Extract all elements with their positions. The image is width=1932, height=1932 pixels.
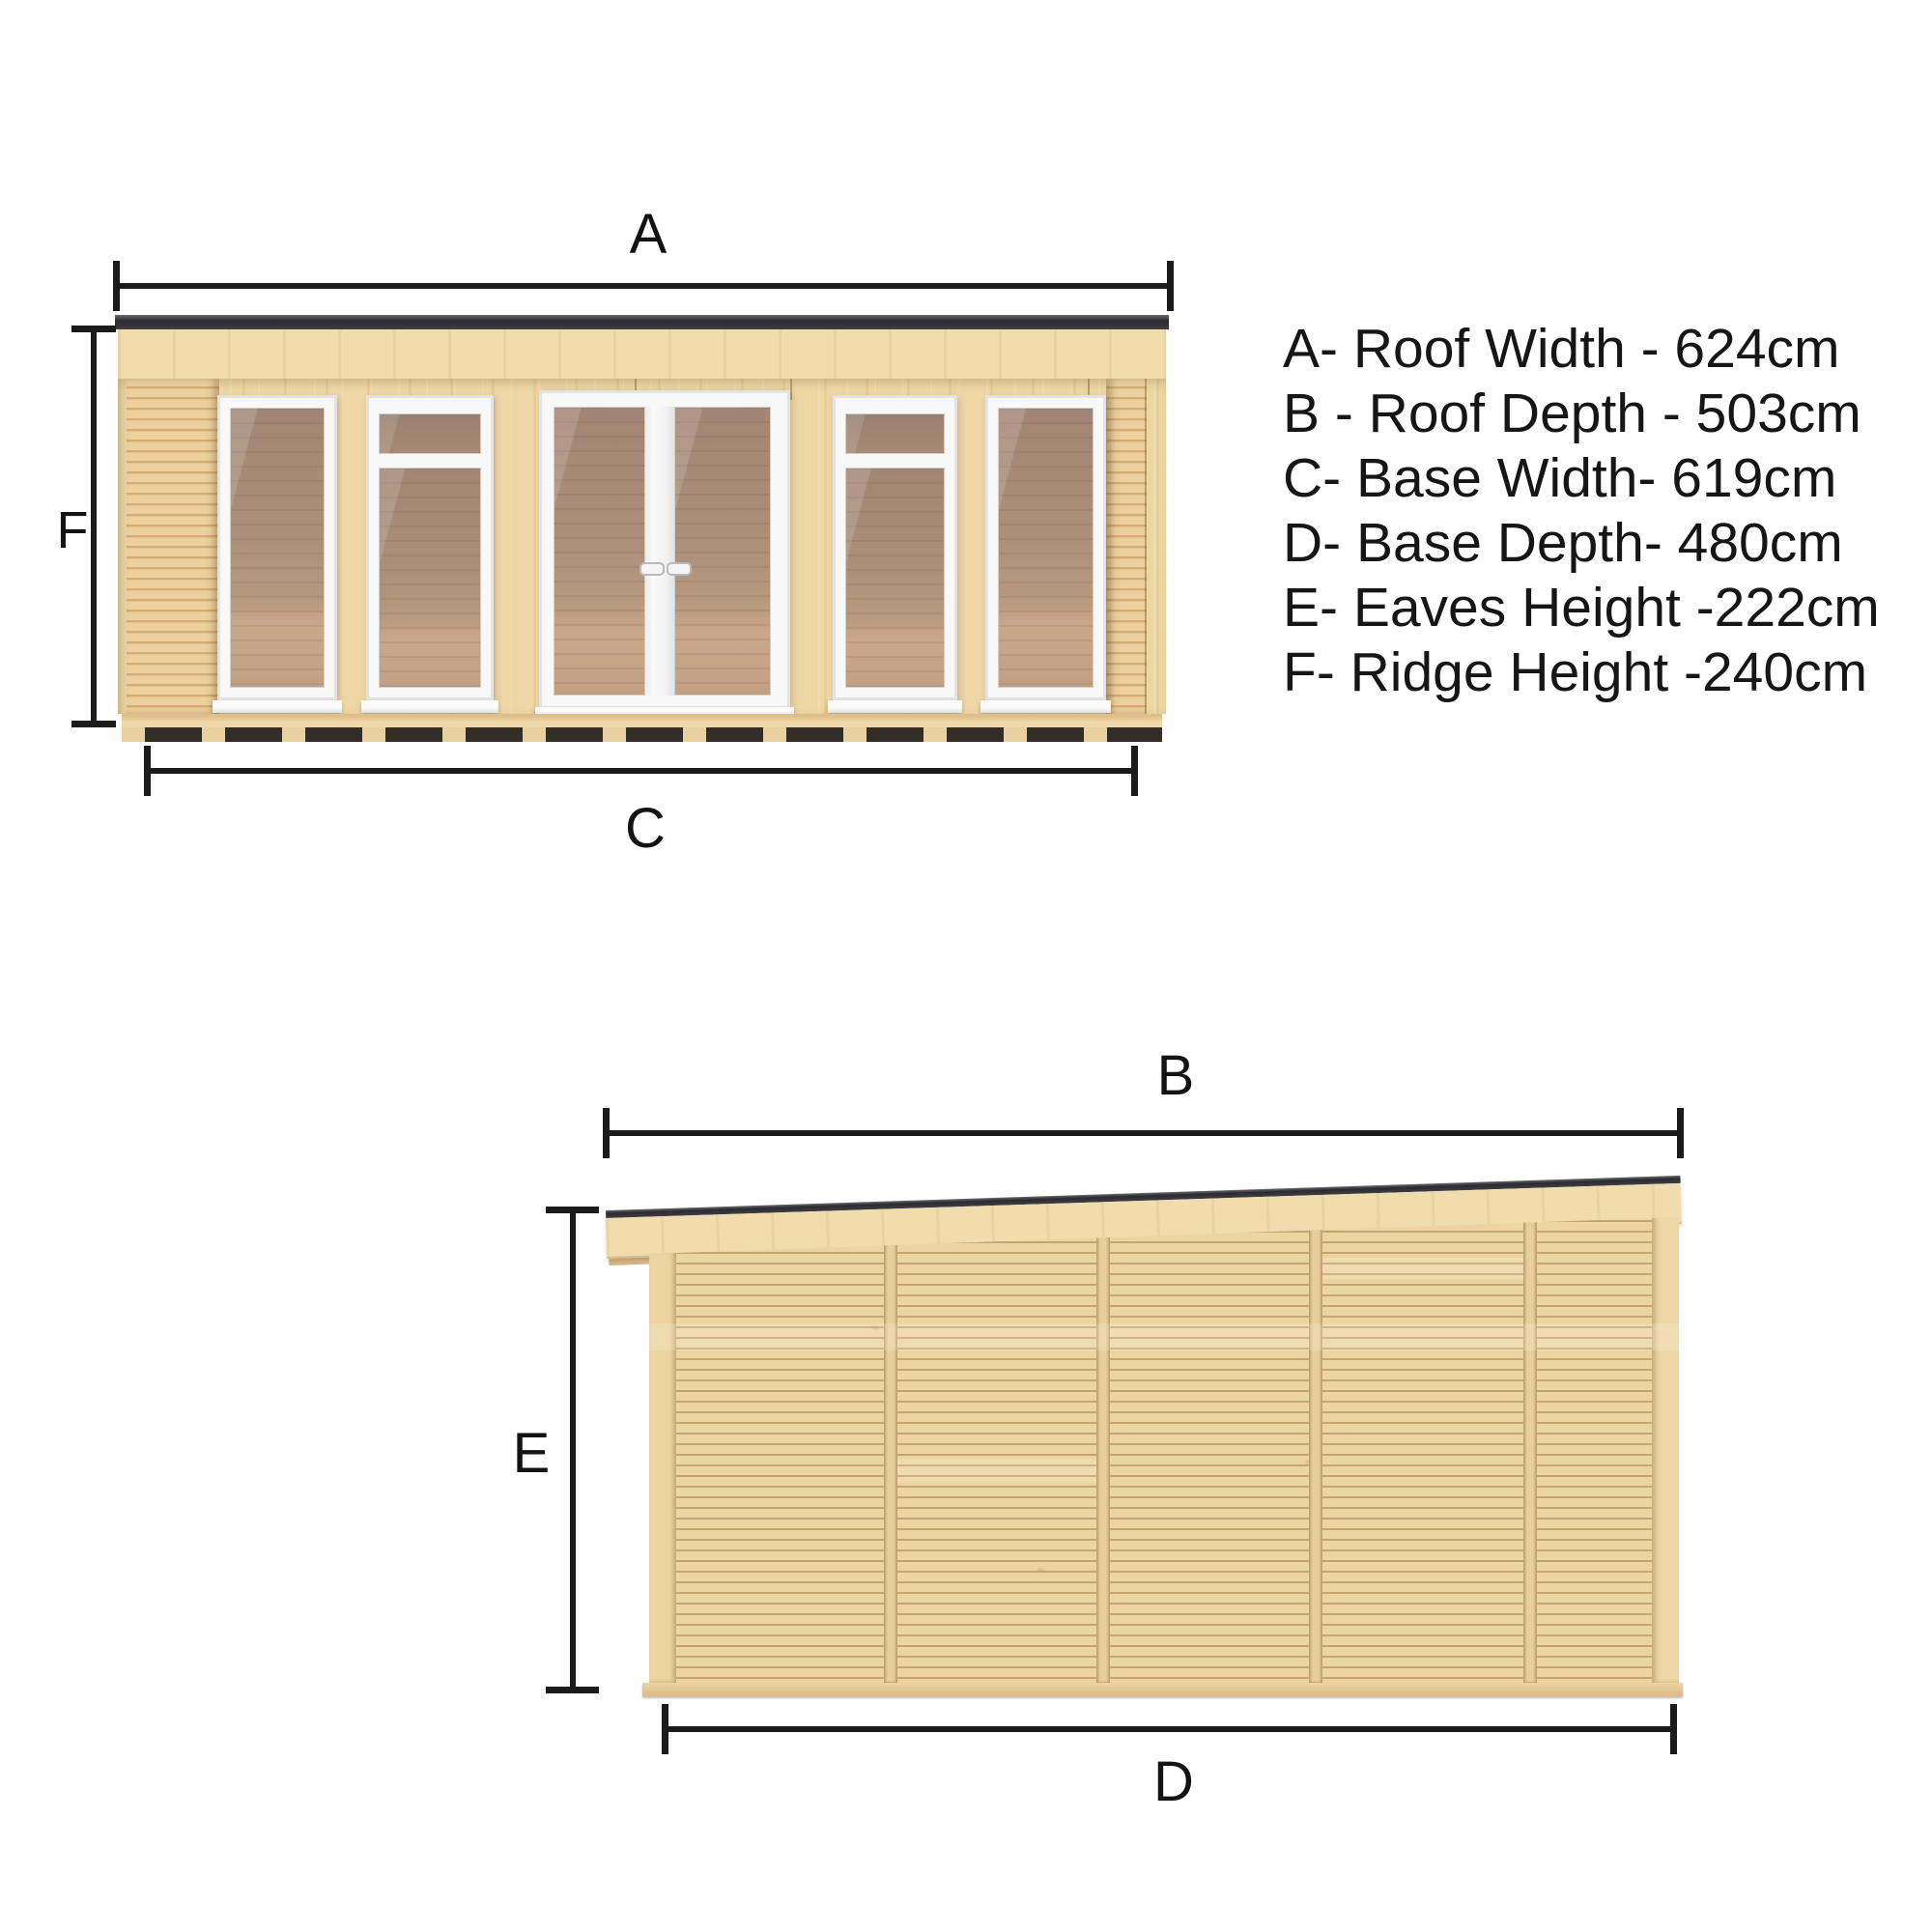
dim-line-base-depth [665, 1726, 1676, 1732]
left-corner-slat-wall [127, 379, 219, 714]
double-door [539, 390, 790, 709]
dim-tick [1677, 1108, 1684, 1158]
legend-line-eaves-height: E- Eaves Height -222cm [1283, 576, 1880, 640]
dim-tick [1167, 261, 1174, 311]
tall-window-right [985, 395, 1106, 700]
legend-line-ridge-height: F- Ridge Height -240cm [1283, 640, 1880, 705]
window-sill [828, 700, 962, 713]
legend-line-roof-width: A- Roof Width - 624cm [1283, 317, 1880, 382]
dim-line-roof-depth [606, 1130, 1683, 1136]
transom-window-left [366, 395, 494, 700]
board-highlight [649, 1323, 1679, 1350]
dim-label-roof-depth: B [1137, 1047, 1214, 1105]
transom-pane [845, 413, 945, 454]
dim-tick [71, 326, 116, 332]
panel-joint [884, 1169, 897, 1683]
side-base-rail [642, 1683, 1683, 1696]
board-highlight [897, 1459, 1096, 1482]
right-corner-trim [1652, 1169, 1679, 1683]
panel-joint [1096, 1169, 1110, 1683]
door-glass-left [554, 407, 645, 696]
transom-window-right [833, 395, 957, 700]
dimension-legend: A- Roof Width - 624cm B - Roof Depth - 5… [1283, 317, 1880, 705]
dim-label-base-width: C [607, 800, 684, 858]
legend-line-base-depth: D- Base Depth- 480cm [1283, 511, 1880, 576]
floor-edge [122, 714, 1162, 727]
window-glass [845, 468, 945, 688]
front-elevation-view [118, 315, 1166, 742]
right-corner-post-edge [1145, 379, 1147, 714]
side-elevation-view [599, 1169, 1690, 1710]
dim-tick [546, 1207, 599, 1213]
dim-tick [144, 746, 151, 796]
legend-line-roof-depth: B - Roof Depth - 503cm [1283, 382, 1880, 446]
window-sill [361, 700, 498, 713]
legend-line-base-width: C- Base Width- 619cm [1283, 446, 1880, 511]
tall-window-left [217, 395, 337, 700]
door-center-stile [645, 407, 674, 696]
dim-label-roof-width: A [610, 206, 687, 264]
window-glass [230, 408, 325, 688]
window-glass [998, 408, 1094, 688]
dim-label-eaves-height: E [497, 1425, 565, 1483]
door-glass-right [674, 407, 771, 696]
dim-tick [546, 1687, 599, 1693]
header-joint [790, 379, 792, 400]
window-sill [980, 700, 1111, 713]
dim-tick [662, 1704, 668, 1754]
dim-tick [1131, 746, 1138, 796]
panel-joint [1309, 1169, 1322, 1683]
front-roof-fascia [118, 329, 1166, 381]
right-corner-slat-wall [1106, 379, 1147, 714]
dim-line-roof-width [116, 283, 1171, 289]
door-handle-right [667, 562, 692, 576]
dim-tick [71, 721, 116, 727]
dim-tick [113, 261, 120, 311]
product-dimension-diagram: A F C A- Roof Width - 624cm B - Roof Dep… [0, 0, 1932, 1932]
board-highlight [1322, 1258, 1523, 1279]
dim-tick [1670, 1704, 1677, 1754]
window-sill [213, 700, 342, 713]
floor-bearers [122, 727, 1162, 742]
window-glass [379, 468, 481, 688]
panel-joint [1523, 1169, 1537, 1683]
transom-pane [379, 413, 481, 454]
front-roof-strip [115, 315, 1169, 329]
dim-tick [603, 1108, 610, 1158]
dim-line-eaves-height [570, 1209, 576, 1693]
door-handle-left [639, 562, 665, 576]
dim-line-base-width [147, 768, 1137, 774]
dim-label-base-depth: D [1135, 1753, 1212, 1811]
dim-label-ridge-height: F [43, 501, 101, 559]
